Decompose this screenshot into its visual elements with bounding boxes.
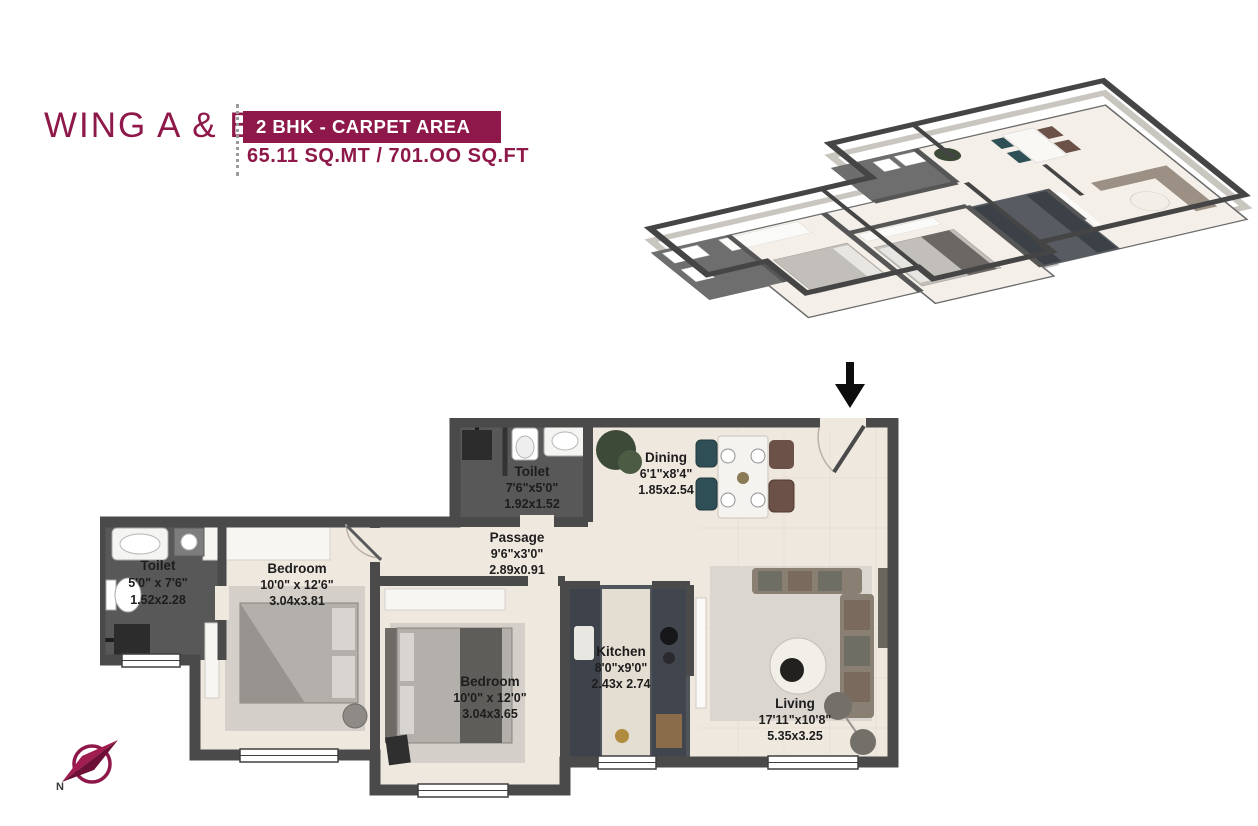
svg-text:10'0" x 12'0": 10'0" x 12'0" xyxy=(453,691,526,705)
svg-text:3.04x3.81: 3.04x3.81 xyxy=(269,594,325,608)
carpet-area-badge: 2 BHK - CARPET AREA xyxy=(243,111,501,143)
svg-text:17'11"x10'8": 17'11"x10'8" xyxy=(759,713,832,727)
floor-plan-brochure: WING A & B 2 BHK - CARPET AREA 65.11 SQ.… xyxy=(0,0,1258,826)
room-label-bedroom-1: Bedroom xyxy=(267,561,326,576)
room-label-passage: Passage xyxy=(490,530,545,545)
svg-text:6'1"x8'4": 6'1"x8'4" xyxy=(640,467,693,481)
room-label-toilet-left: Toilet xyxy=(141,558,177,573)
room-label-living: Living xyxy=(775,696,815,711)
down-arrow-icon xyxy=(834,362,866,410)
svg-text:1.85x2.54: 1.85x2.54 xyxy=(638,483,694,497)
room-label-dining: Dining xyxy=(645,450,687,465)
isometric-3d-floor-plan xyxy=(575,22,1258,337)
room-label-toilet-top: Toilet xyxy=(515,464,551,479)
room-label-kitchen: Kitchen xyxy=(596,644,646,659)
svg-text:2.89x0.91: 2.89x0.91 xyxy=(489,563,545,577)
svg-text:5.35x3.25: 5.35x3.25 xyxy=(767,729,823,743)
north-compass-icon: N xyxy=(48,728,132,806)
2d-floor-plan: Toilet 7'6"x5'0" 1.92x1.52 Dining 6'1"x8… xyxy=(100,418,900,808)
svg-text:2.43x 2.74: 2.43x 2.74 xyxy=(591,677,650,691)
svg-text:10'0" x 12'6": 10'0" x 12'6" xyxy=(260,578,333,592)
carpet-area-value: 65.11 SQ.MT / 701.OO SQ.FT xyxy=(247,145,529,168)
svg-text:1.52x2.28: 1.52x2.28 xyxy=(130,593,186,607)
header-divider xyxy=(236,104,239,176)
svg-text:9'6"x3'0": 9'6"x3'0" xyxy=(491,547,544,561)
svg-text:1.92x1.52: 1.92x1.52 xyxy=(504,497,560,511)
wing-title: WING A & B xyxy=(44,106,255,146)
svg-text:7'6"x5'0": 7'6"x5'0" xyxy=(506,481,559,495)
svg-text:8'0"x9'0": 8'0"x9'0" xyxy=(595,661,648,675)
room-label-bedroom-2: Bedroom xyxy=(460,674,519,689)
compass-north-label: N xyxy=(56,781,64,793)
svg-text:5'0" x 7'6": 5'0" x 7'6" xyxy=(128,576,188,590)
svg-text:3.04x3.65: 3.04x3.65 xyxy=(462,707,518,721)
